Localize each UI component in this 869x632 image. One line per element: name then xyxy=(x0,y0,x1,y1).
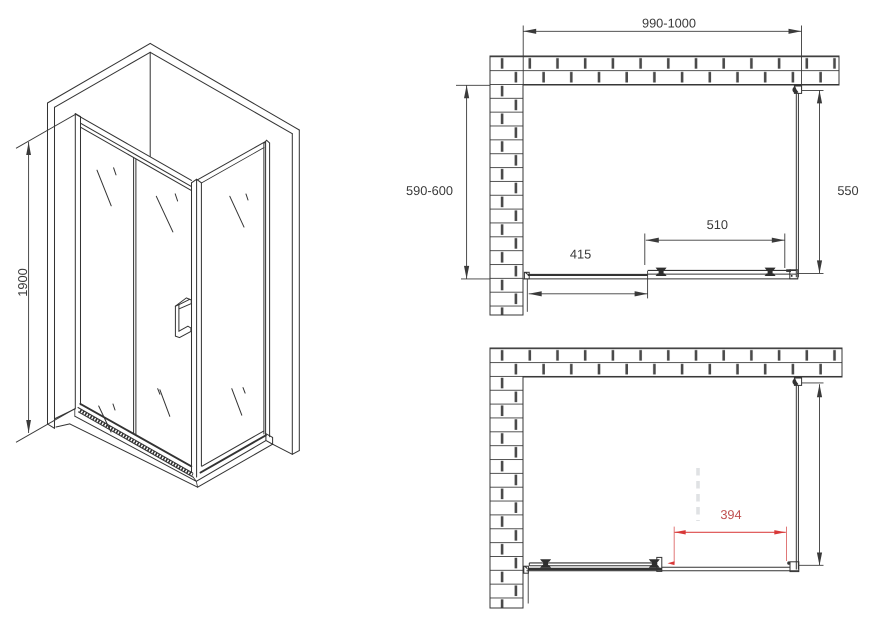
svg-text:1900: 1900 xyxy=(15,268,30,296)
svg-text:394: 394 xyxy=(720,507,741,522)
svg-text:590-600: 590-600 xyxy=(406,183,453,198)
svg-text:510: 510 xyxy=(707,217,728,232)
svg-text:990-1000: 990-1000 xyxy=(642,16,696,31)
svg-text:550: 550 xyxy=(837,183,858,198)
svg-text:415: 415 xyxy=(570,246,591,261)
